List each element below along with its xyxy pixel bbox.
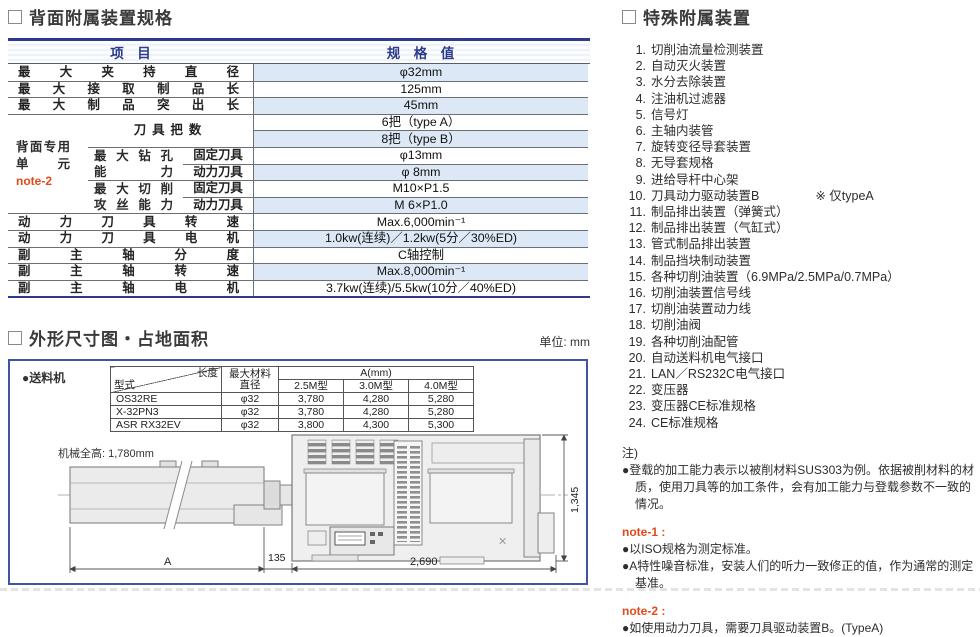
list-item: 旋转变径导套装置 xyxy=(622,139,974,155)
feeder-col-40m: 4.0M型 xyxy=(409,380,474,393)
spec-tap-label: 最大切削攻丝能力 xyxy=(88,180,183,213)
spec-row-value: 3.7kw(连续)/5.5kw(10分／40%ED) xyxy=(253,280,588,297)
note-1-label: note-1 : xyxy=(622,524,974,541)
rear-spec-title: 背面附属装置规格 xyxy=(8,4,590,29)
left-column: 背面附属装置规格 项 目 规 格 值 最大夹持直径 φ32mm 最大接取制品长 … xyxy=(8,4,590,585)
feeder-row: ASR RX32EV φ32 3,800 4,300 5,300 xyxy=(111,419,474,432)
list-item: 管式制品排出装置 xyxy=(622,236,974,252)
list-item: 进给导杆中心架 xyxy=(622,172,974,188)
list-item: 切削油装置信号线 xyxy=(622,285,974,301)
unit-label: 单位: mm xyxy=(539,333,590,350)
list-item: LAN／RS232C电气接口 xyxy=(622,366,974,382)
page-cutoff-artifact xyxy=(0,588,980,591)
list-item: 变压器CE标准规格 xyxy=(622,398,974,414)
feeder-row: X-32PN3 φ32 3,780 4,280 5,280 xyxy=(111,406,474,419)
dim-135-label: 135 xyxy=(268,552,286,564)
note-1-item: ●A特性噪音标准，安装人们的听力一致修正的值，作为通常的测定基准。 xyxy=(622,558,974,592)
list-item: 各种切削油装置（6.9MPa/2.5MPa/0.7MPa） xyxy=(622,269,974,285)
spec-row-value: M10×P1.5 xyxy=(253,180,588,197)
spec-row-value: 45mm xyxy=(253,97,588,114)
spec-row-value: 8把（type B） xyxy=(253,130,588,147)
spec-row-value: Max.6,000min⁻¹ xyxy=(253,213,588,230)
note-2-ref: note-2 xyxy=(16,173,52,190)
feeder-row: OS32RE φ32 3,780 4,280 5,280 xyxy=(111,393,474,406)
spec-row-label: 副主轴分度 xyxy=(8,247,253,264)
spec-row-label: 最大夹持直径 xyxy=(8,64,253,81)
machine-body: ✕ xyxy=(292,435,554,564)
rear-spec-title-text: 背面附属装置规格 xyxy=(29,4,173,29)
special-title-text: 特殊附属装置 xyxy=(643,4,751,29)
spec-row-label: 动力刀具电机 xyxy=(8,230,253,247)
list-item: 制品挡块制动装置 xyxy=(622,253,974,269)
dim-2690-label: 2,690 xyxy=(410,556,438,568)
list-item: 切削油阀 xyxy=(622,317,974,333)
list-item: 主轴内装管 xyxy=(622,123,974,139)
spec-power-tool-label: 动力刀具 xyxy=(183,164,253,181)
spec-row-label: 副主轴转速 xyxy=(8,263,253,280)
list-item: 各种切削油配管 xyxy=(622,334,974,350)
spec-row-value: 125mm xyxy=(253,81,588,98)
list-item: 无导套规格 xyxy=(622,155,974,171)
spec-table-body: 最大夹持直径 φ32mm 最大接取制品长 125mm 最大制品突出长 45mm … xyxy=(8,64,590,296)
note-1-item: ●以ISO规格为测定标准。 xyxy=(622,541,974,558)
note-general: ●登载的加工能力表示以被削材料SUS303为例。依据被削材料的材质，使用刀具等的… xyxy=(622,462,974,513)
feeder-table: 长度 型式 最大材料直径 A(mm) 2.5M型 3.0M型 4.0M型 OS3… xyxy=(110,366,474,432)
feeder-col-a: A(mm) xyxy=(279,367,474,380)
special-title: 特殊附属装置 xyxy=(622,4,974,29)
type-a-only-note: ※ 仅typeA xyxy=(815,188,873,204)
spec-power-tool-label: 动力刀具 xyxy=(183,197,253,214)
right-column: 特殊附属装置 切削油流量检测装置 自动灭火装置 水分去除装置 注油机过滤器 信号… xyxy=(622,4,974,637)
spec-drill-label: 最大钻孔能力 xyxy=(88,147,183,180)
feeder-col-25m: 2.5M型 xyxy=(279,380,344,393)
spec-row-value: Max.8,000min⁻¹ xyxy=(253,263,588,280)
list-item: 自动灭火装置 xyxy=(622,58,974,74)
list-item: 水分去除装置 xyxy=(622,74,974,90)
spec-header-item: 项 目 xyxy=(8,42,253,62)
special-accessories-list: 切削油流量检测装置 自动灭火装置 水分去除装置 注油机过滤器 信号灯 主轴内装管… xyxy=(622,42,974,431)
spec-row-value: φ13mm xyxy=(253,147,588,164)
feeder-col-diameter: 最大材料直径 xyxy=(222,367,279,393)
spec-row-value: φ 8mm xyxy=(253,164,588,181)
note-2-item: ●如使用动力刀具，需要刀具驱动装置B。(TypeA) xyxy=(622,620,974,637)
list-item: 切削油流量检测装置 xyxy=(622,42,974,58)
list-item: 切削油装置动力线 xyxy=(622,301,974,317)
spec-row-value: M 6×P1.0 xyxy=(253,197,588,214)
dim-a-label: A xyxy=(164,556,172,568)
spec-fixed-tool-label: 固定刀具 xyxy=(183,147,253,164)
spec-group-rear-unit: 背面专用 单元 note-2 xyxy=(8,114,88,214)
feeder-label: ●送料机 xyxy=(22,369,65,386)
list-item: 信号灯 xyxy=(622,107,974,123)
feeder-col-30m: 3.0M型 xyxy=(344,380,409,393)
spec-row-value: φ32mm xyxy=(253,64,588,81)
svg-text:✕: ✕ xyxy=(498,536,507,548)
dim-1345-label: 1,345 xyxy=(569,487,581,513)
spec-row-label: 动力刀具转速 xyxy=(8,213,253,230)
list-item: 自动送料机电气接口 xyxy=(622,350,974,366)
section-square-icon xyxy=(8,331,22,345)
list-item: 变压器 xyxy=(622,382,974,398)
section-square-icon xyxy=(622,10,636,24)
machine-height-label: 机械全高: 1,780mm xyxy=(58,446,154,460)
dimensions-title: 外形尺寸图・占地面积 单位: mm xyxy=(8,325,590,350)
list-item: CE标准规格 xyxy=(622,415,974,431)
spec-table-header: 项 目 规 格 值 xyxy=(8,41,590,64)
list-item: 刀具动力驱动装置B※ 仅typeA xyxy=(622,188,974,204)
note-head: 注) xyxy=(622,445,974,462)
bar-feeder xyxy=(70,461,292,529)
machine-top-view-drawing: 机械全高: 1,780mm xyxy=(12,431,584,581)
list-item: 制品排出装置（气缸式） xyxy=(622,220,974,236)
spec-row-value: C轴控制 xyxy=(253,247,588,264)
dimension-drawing-box: ●送料机 长度 型式 最大材料直径 A(mm) 2.5M型 3.0M型 4.0M… xyxy=(8,359,588,585)
section-square-icon xyxy=(8,10,22,24)
list-item: 注油机过滤器 xyxy=(622,91,974,107)
note-2-label: note-2 : xyxy=(622,603,974,620)
spec-header-value: 规 格 值 xyxy=(253,42,588,62)
spec-row-label: 副主轴电机 xyxy=(8,280,253,297)
spec-row-value: 1.0kw(连续)／1.2kw(5分／30%ED) xyxy=(253,230,588,247)
footnotes: 注) ●登载的加工能力表示以被削材料SUS303为例。依据被削材料的材质，使用刀… xyxy=(622,445,974,637)
spec-fixed-tool-label: 固定刀具 xyxy=(183,180,253,197)
dimensions-title-text: 外形尺寸图・占地面积 xyxy=(29,325,209,350)
spec-row-value: 6把（type A） xyxy=(253,114,588,131)
feeder-table-corner: 长度 型式 xyxy=(111,367,222,393)
spec-row-label: 最大接取制品长 xyxy=(8,81,253,98)
rear-spec-table: 项 目 规 格 值 最大夹持直径 φ32mm 最大接取制品长 125mm 最大制… xyxy=(8,38,590,298)
list-item: 制品排出装置（弹簧式） xyxy=(622,204,974,220)
spec-tools-label: 刀具把数 xyxy=(88,114,253,147)
spec-row-label: 最大制品突出长 xyxy=(8,97,253,114)
